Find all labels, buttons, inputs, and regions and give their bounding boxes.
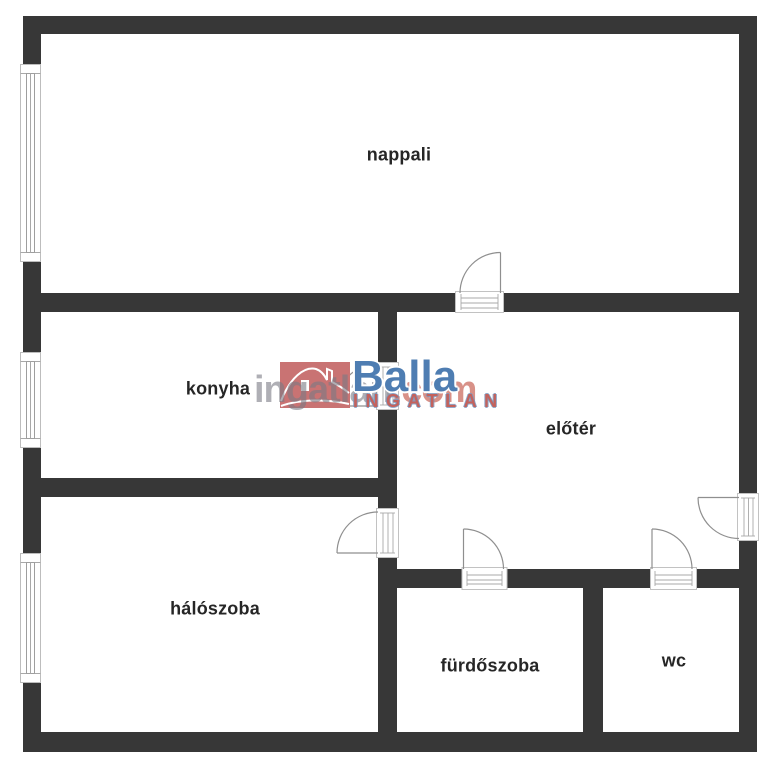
doorframe-haloszoba: [377, 509, 399, 558]
room-label-eloter: előtér: [546, 419, 596, 440]
doorframe-nappali: [456, 292, 504, 313]
window-konyha: [21, 353, 41, 448]
door-swing-wc: [652, 529, 692, 569]
room-label-nappali: nappali: [367, 145, 431, 166]
door-swing-entry: [698, 498, 739, 539]
window-haloszoba: [21, 554, 41, 683]
window-nappali: [21, 65, 41, 262]
room-label-furdoszoba: fürdőszoba: [441, 656, 540, 677]
doorframe-furdoszoba: [462, 568, 507, 590]
room-label-konyha: konyha: [186, 379, 250, 400]
room-label-haloszoba: hálószoba: [170, 599, 260, 620]
door-swing-haloszoba: [337, 512, 378, 553]
door-swing-nappali: [460, 253, 501, 294]
floor-plan: nappali konyha előtér hálószoba fürdőszo…: [0, 0, 773, 768]
doorframe-wc: [651, 568, 697, 590]
room-label-wc: wc: [662, 651, 686, 672]
watermark-brand-word: INGATLAN: [353, 391, 505, 411]
door-swing-furdoszoba: [464, 529, 504, 569]
doorframe-entry: [738, 494, 759, 541]
